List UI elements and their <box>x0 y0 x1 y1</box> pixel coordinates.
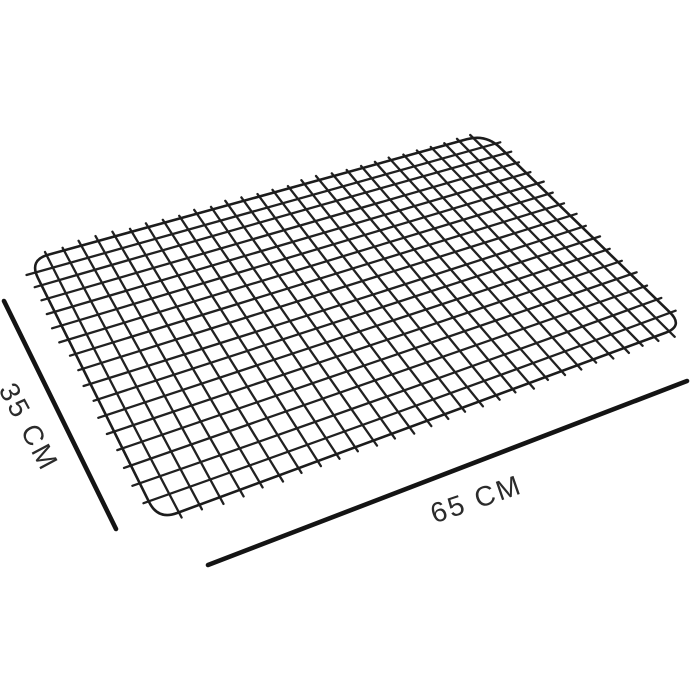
mesh-grid <box>27 135 676 518</box>
mesh-wire <box>70 203 564 355</box>
mesh-wire <box>96 236 244 496</box>
width-dimension-label: 65 CM <box>426 469 526 529</box>
mesh-wire <box>470 135 675 337</box>
mesh-wire <box>45 252 182 518</box>
product-dimension-diagram: 35 CM 65 CM <box>0 0 700 700</box>
depth-dimension-label: 35 CM <box>0 378 65 476</box>
mesh-wire <box>98 249 609 418</box>
mesh-rack-illustration: 35 CM 65 CM <box>0 0 700 700</box>
width-dimension-line <box>208 381 687 565</box>
